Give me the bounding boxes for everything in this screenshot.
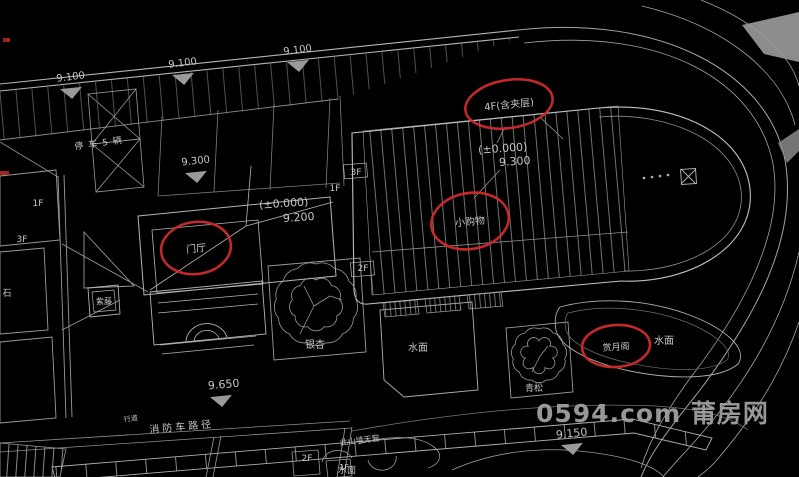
water-label: 水面 xyxy=(654,335,674,347)
survey-marker-icon xyxy=(681,168,697,184)
tree-label: 银杏 xyxy=(305,338,325,351)
tree-label: 紫藤 xyxy=(96,296,112,306)
floor-label: 1F xyxy=(330,184,341,194)
left-edge-buildings xyxy=(0,170,148,423)
floor-label: 1F xyxy=(33,199,44,209)
gray-fill-shapes xyxy=(742,12,799,163)
datum-label: (±0.000) xyxy=(259,195,309,211)
path-label: 消防车路径 xyxy=(149,417,215,436)
elevation-label: 9.300 xyxy=(499,154,531,169)
stairs xyxy=(0,443,66,477)
elevation-marker-icon xyxy=(185,171,208,184)
elevation-label: 9.200 xyxy=(283,210,315,225)
watermark: 0594.com 莆房网 xyxy=(536,394,769,430)
annotation-entrance-hall-label: 门厅 xyxy=(185,241,206,256)
floor-label: 1F xyxy=(339,463,349,472)
parking-note-label: 停车5辆 xyxy=(74,133,128,152)
tree-label: 青松 xyxy=(525,382,543,394)
elevation-label: 9.100 xyxy=(168,56,198,70)
cad-site-plan: 9.1009.1009.100停车5辆9.3001F3F石1F3F(±0.000… xyxy=(0,0,799,477)
tree-canopy-icon xyxy=(521,338,558,374)
ponds xyxy=(380,301,741,397)
elevation-marker-icon xyxy=(561,443,584,456)
floor-label: 3F xyxy=(351,168,362,178)
note-label: 行道 xyxy=(123,413,138,424)
dotted-leader xyxy=(643,174,670,180)
annotation-4f-mezzanine-label: 4F(含夹层) xyxy=(484,95,535,113)
elevation-label: 9.650 xyxy=(207,377,240,393)
elevation-label: 9.300 xyxy=(181,155,211,169)
planter-strips xyxy=(383,292,503,317)
main-building xyxy=(352,106,750,304)
floor-label: 2F xyxy=(358,264,369,274)
annotation-moon-pavilion-label: 赏月阁 xyxy=(602,340,630,354)
elevation-marker-icon xyxy=(210,395,233,408)
water-label: 水面 xyxy=(408,342,428,354)
floor-label: 2F xyxy=(302,454,313,464)
floor-label: 3F xyxy=(17,235,28,245)
note-label: 石 xyxy=(2,289,11,299)
elevation-label: 9.100 xyxy=(283,43,313,57)
